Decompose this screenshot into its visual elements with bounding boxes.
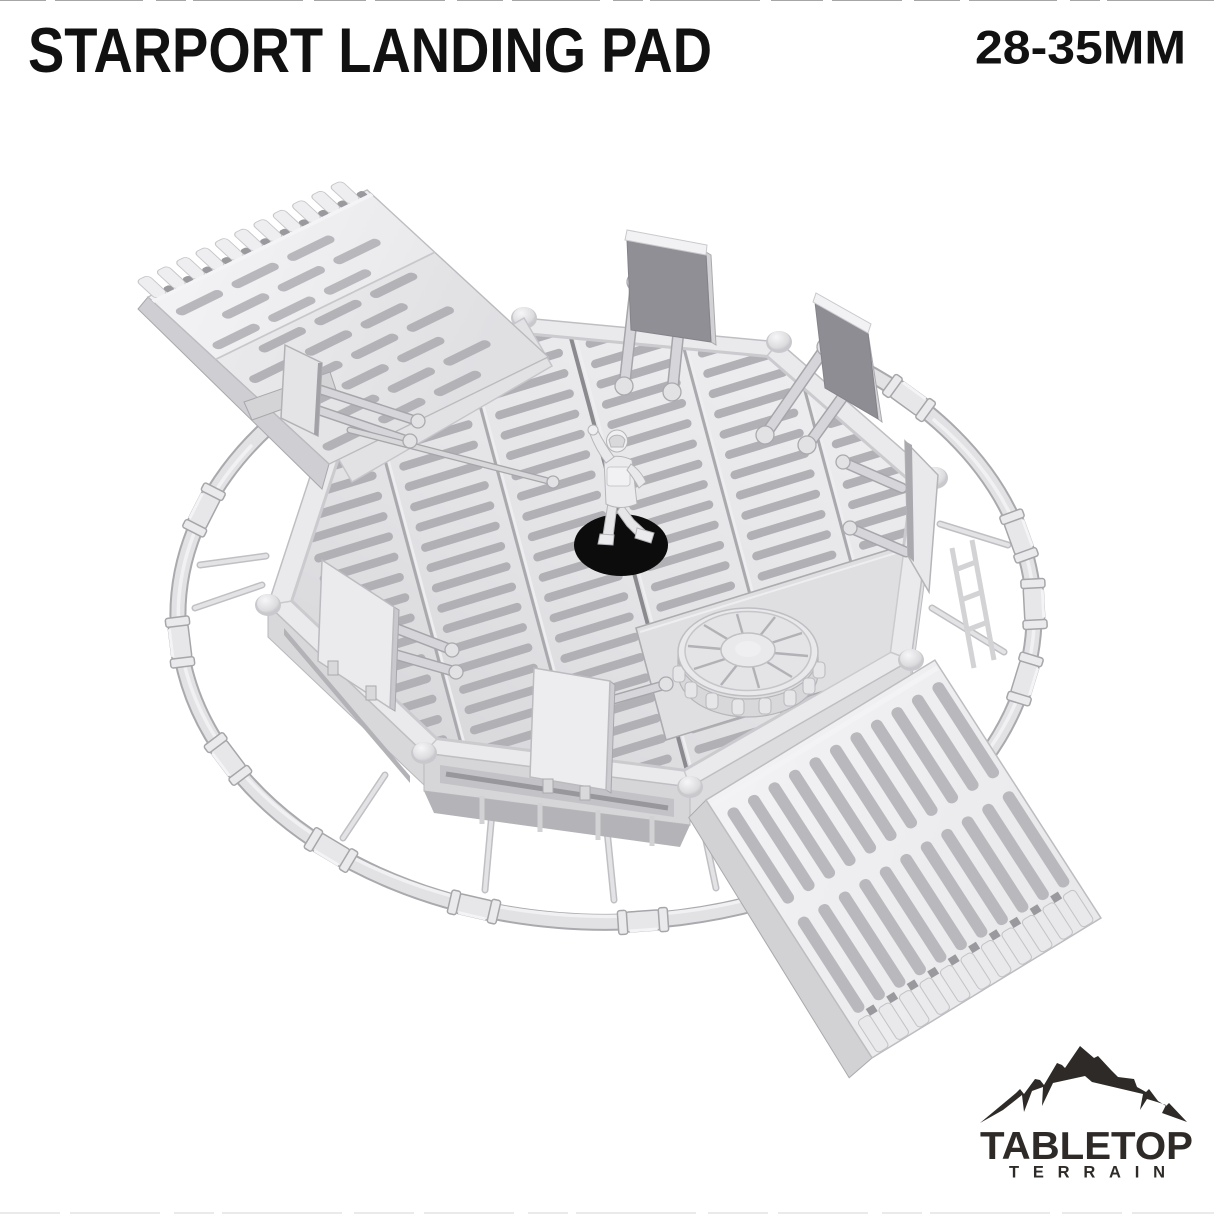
svg-text:STARPORT LANDING PAD: STARPORT LANDING PAD	[28, 16, 712, 86]
svg-text:28-35MM: 28-35MM	[975, 21, 1186, 74]
svg-text:TABLETOP: TABLETOP	[980, 1125, 1193, 1168]
